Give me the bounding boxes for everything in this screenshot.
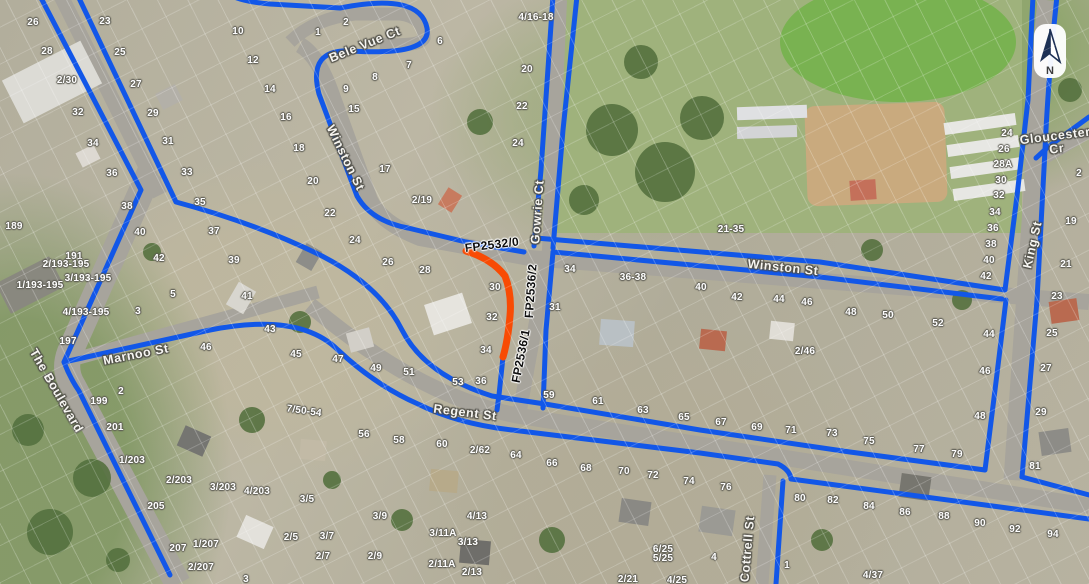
north-label: N xyxy=(1046,65,1054,77)
footpath-line[interactable] xyxy=(776,481,783,584)
footpath-line[interactable] xyxy=(534,0,553,246)
footpath-line[interactable] xyxy=(64,362,170,575)
footpath-line[interactable] xyxy=(553,0,577,248)
footpath-line[interactable] xyxy=(543,252,553,408)
footpath-line[interactable] xyxy=(497,357,503,410)
footpath-network-layer[interactable] xyxy=(0,0,1089,584)
selected-footpath-segment[interactable] xyxy=(466,251,510,357)
footpath-line[interactable] xyxy=(232,0,524,252)
footpath-line[interactable] xyxy=(536,0,1033,290)
north-compass[interactable]: N xyxy=(1032,22,1068,80)
aerial-map-canvas[interactable]: 262328252/302732293431363318919138404235… xyxy=(0,0,1089,584)
footpath-line[interactable] xyxy=(40,0,1089,519)
